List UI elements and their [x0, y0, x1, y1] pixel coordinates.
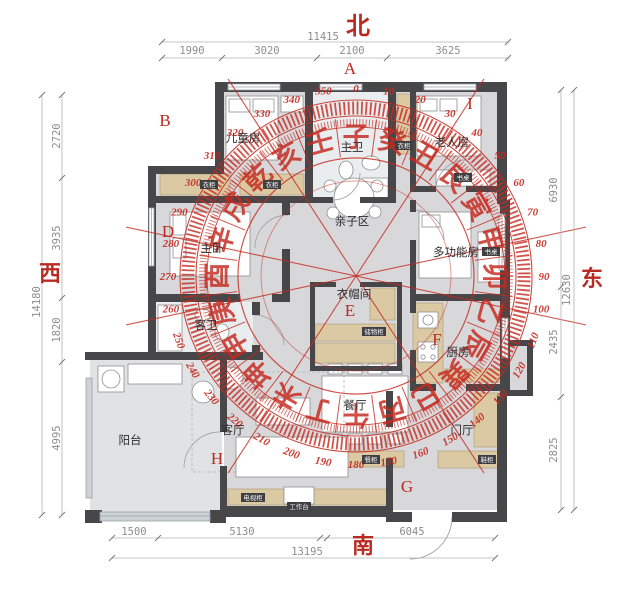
room-label-elder-room: 老人房 [435, 136, 470, 149]
dim-bottom-seg-2: 6045 [399, 526, 424, 538]
tag-dining-cabinet: 餐柜 [362, 455, 380, 464]
tag-tv-cabinet: 电视柜 [241, 493, 265, 502]
dim-top-seg-3: 3625 [435, 45, 460, 57]
marker-f: F [432, 330, 441, 349]
compass-degree-350: 350 [314, 86, 332, 98]
marker-h: H [211, 449, 223, 468]
dim-top-total: 11415 [307, 31, 339, 43]
dim-left-seg-3: 4995 [51, 425, 63, 450]
compass-degree-10: 10 [383, 86, 395, 98]
marker-i: I [467, 94, 473, 113]
direction-south-label: 南 [352, 533, 374, 558]
tag-shoe-cabinet-label: 鞋柜 [481, 455, 495, 464]
direction-north-label: 北 [346, 13, 370, 40]
dim-bottom-seg-1: 5130 [229, 526, 254, 538]
tag-desk-multi: 书桌 [482, 247, 500, 256]
floorplan-canvas: 子癸丑艮寅甲卯乙辰巽巳丙午丁未坤申庚酉辛戌乾亥壬0102030405060708… [0, 0, 640, 593]
compass-degree-80: 80 [536, 238, 548, 250]
compass-degree-60: 60 [513, 177, 525, 189]
direction-west-label: 西 [39, 261, 61, 286]
compass-degree-0: 0 [353, 83, 359, 95]
tag-desk-multi-label: 书桌 [485, 247, 499, 256]
direction-east-label: 东 [581, 266, 603, 291]
dim-bottom-total: 13195 [291, 546, 323, 558]
compass-degree-300: 300 [184, 177, 202, 189]
room-label-guest-bath: 客卫 [195, 318, 218, 332]
compass-degree-110: 110 [525, 331, 542, 351]
tag-desk-elder-label: 书桌 [457, 173, 471, 182]
dim-left-seg-1: 3935 [51, 225, 63, 250]
tag-storage-cabinet: 储物柜 [362, 327, 386, 336]
marker-d: D [162, 222, 174, 241]
tag-wardrobe-b: 衣柜 [263, 180, 281, 189]
room-label-living: 客厅 [222, 423, 245, 437]
compass-degree-40: 40 [470, 127, 483, 139]
room-label-master-bath: 主卫 [341, 141, 364, 154]
compass-degree-20: 20 [414, 94, 427, 106]
compass-degree-50: 50 [495, 150, 507, 162]
dim-top-seg-1: 3020 [254, 45, 279, 57]
compass-degree-70: 70 [527, 207, 539, 219]
dim-top-seg-0: 1990 [179, 45, 204, 57]
dim-bottom-seg-0: 1500 [121, 526, 146, 538]
compass-degree-30: 30 [444, 108, 457, 120]
tag-desk-elder: 书桌 [454, 173, 472, 182]
tag-shoe-cabinet: 鞋柜 [478, 455, 496, 464]
toilet-master-bath [339, 161, 353, 179]
room-label-family-area: 亲子区 [335, 214, 370, 228]
compass-degree-90: 90 [539, 271, 551, 283]
tag-tv-cabinet-label: 电视柜 [243, 493, 263, 502]
tag-wardrobe-a-label: 衣柜 [203, 180, 217, 189]
tag-dining-cabinet-label: 餐柜 [365, 455, 379, 464]
compass-degree-260: 260 [162, 303, 180, 315]
dim-right-seg-2: 2825 [548, 437, 560, 462]
room-label-master-bedroom: 主卧 [201, 242, 224, 255]
tag-workbench: 工作台 [287, 502, 311, 511]
marker-b: B [159, 111, 170, 130]
compass-degree-270: 270 [159, 271, 177, 283]
marker-e: E [345, 301, 355, 320]
tag-workbench-label: 工作台 [289, 502, 309, 511]
compass-char-18: 酉 [202, 263, 232, 290]
tag-wardrobe-c-label: 衣柜 [398, 141, 412, 150]
marker-g: G [401, 477, 413, 496]
marker-a: A [344, 59, 357, 78]
tag-wardrobe-c: 衣柜 [395, 141, 413, 150]
room-label-foyer: 门厅 [451, 423, 474, 437]
compass-degree-340: 340 [282, 94, 300, 106]
tag-wardrobe-a: 衣柜 [200, 180, 218, 189]
compass-degree-100: 100 [533, 303, 550, 315]
room-label-balcony: 阳台 [119, 433, 142, 447]
room-label-kitchen: 厨房 [447, 346, 470, 359]
dim-right-seg-1: 2435 [548, 329, 560, 354]
dim-left-total: 14180 [31, 286, 43, 318]
kitchen-sink [423, 315, 433, 325]
room-label-dining: 餐厅 [344, 398, 367, 412]
dim-left-seg-0: 2720 [51, 123, 63, 148]
dim-top-seg-2: 2100 [339, 45, 364, 57]
dim-left-seg-2: 1820 [51, 317, 63, 342]
floorplan: 子癸丑艮寅甲卯乙辰巽巳丙午丁未坤申庚酉辛戌乾亥壬0102030405060708… [0, 0, 640, 593]
compass-char-6: 卯 [480, 263, 510, 290]
tag-wardrobe-b-label: 衣柜 [266, 180, 280, 189]
compass-degree-330: 330 [253, 108, 271, 120]
room-label-cloakroom: 衣帽间 [337, 287, 372, 301]
compass-degree-290: 290 [170, 207, 188, 219]
tag-storage-cabinet-label: 储物柜 [364, 327, 384, 336]
dim-right-total: 12630 [561, 274, 573, 306]
workbench-shape [284, 487, 314, 504]
dim-right-seg-0: 6930 [548, 177, 560, 202]
room-label-multi-room: 多功能房 [433, 245, 479, 259]
room-label-children-room: 儿童房 [226, 131, 261, 145]
compass-degree-310: 310 [203, 150, 221, 162]
